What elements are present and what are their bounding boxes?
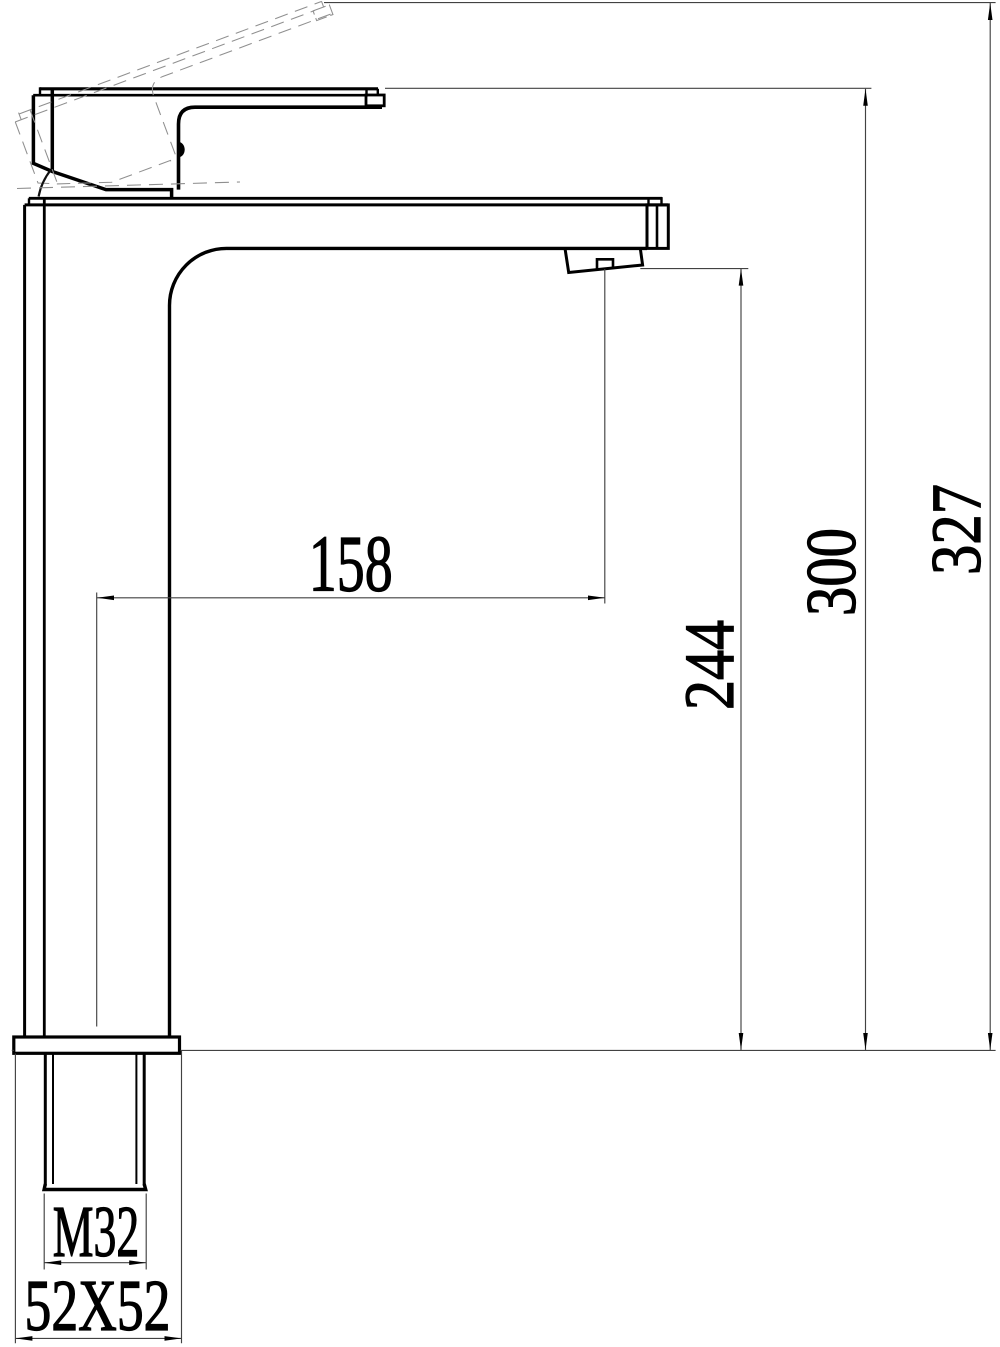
svg-text:158: 158 xyxy=(309,519,393,609)
svg-text:327: 327 xyxy=(918,484,996,575)
svg-text:M32: M32 xyxy=(53,1191,140,1272)
svg-text:244: 244 xyxy=(671,620,749,710)
svg-text:52X52: 52X52 xyxy=(25,1265,171,1346)
svg-text:300: 300 xyxy=(793,528,871,616)
